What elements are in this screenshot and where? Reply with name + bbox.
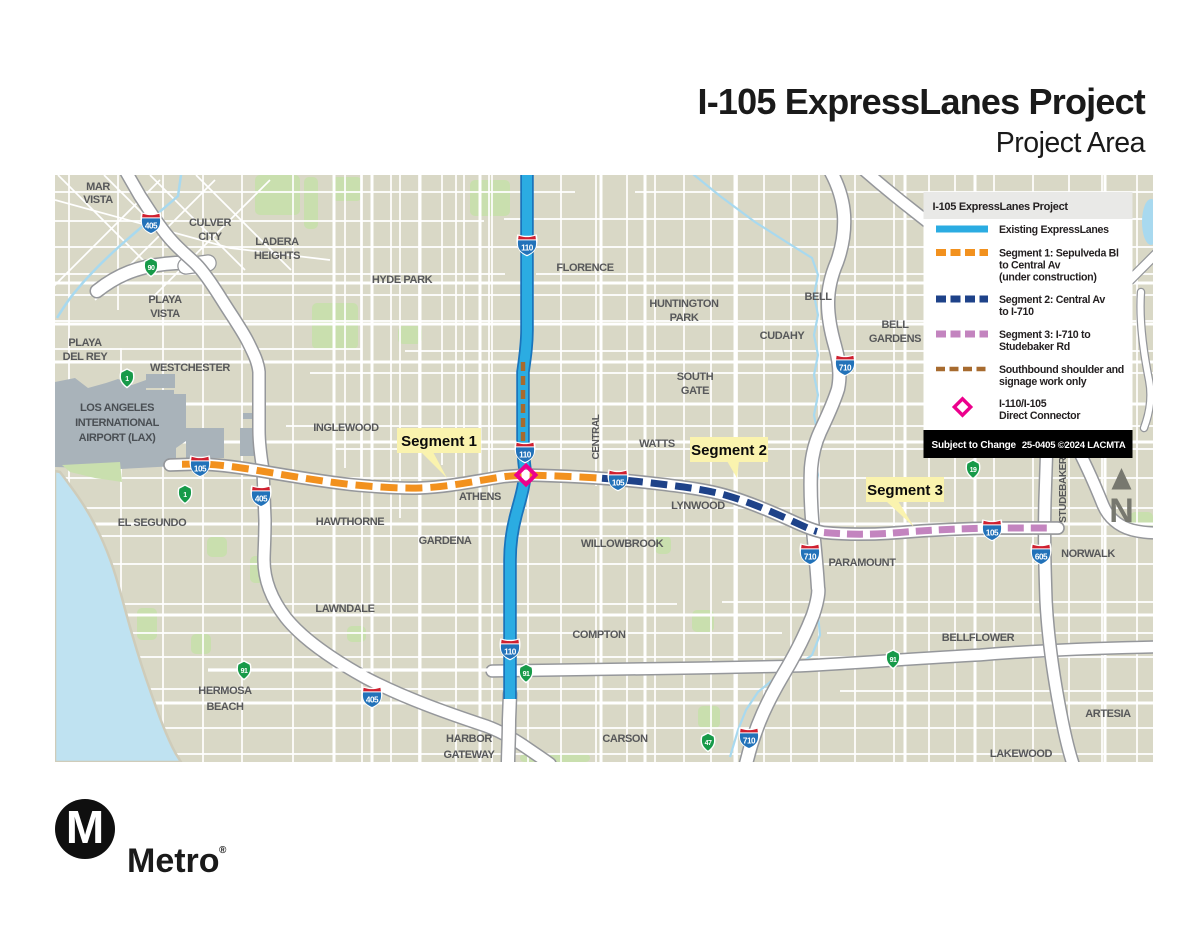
svg-text:PARK: PARK <box>670 312 699 324</box>
svg-text:I-105 ExpressLanes Project: I-105 ExpressLanes Project <box>698 81 1146 122</box>
svg-text:110: 110 <box>504 648 517 657</box>
svg-text:ARTESIA: ARTESIA <box>1085 708 1131 720</box>
svg-text:GATEWAY: GATEWAY <box>444 749 496 761</box>
svg-text:19: 19 <box>970 467 977 474</box>
svg-text:BEACH: BEACH <box>206 701 244 713</box>
svg-text:WATTS: WATTS <box>639 438 675 450</box>
svg-text:405: 405 <box>366 696 379 705</box>
svg-text:25-0405 ©2024 LACMTA: 25-0405 ©2024 LACMTA <box>1022 440 1126 451</box>
svg-text:COMPTON: COMPTON <box>572 629 626 641</box>
svg-text:47: 47 <box>705 740 712 747</box>
svg-text:Studebaker Rd: Studebaker Rd <box>999 341 1070 353</box>
svg-text:Segment 3: Segment 3 <box>867 482 943 499</box>
svg-text:Existing ExpressLanes: Existing ExpressLanes <box>999 224 1109 236</box>
svg-text:INGLEWOOD: INGLEWOOD <box>313 422 379 434</box>
svg-text:®: ® <box>219 845 227 856</box>
svg-text:110: 110 <box>521 244 534 253</box>
svg-text:HYDE PARK: HYDE PARK <box>372 274 433 286</box>
svg-text:LYNWOOD: LYNWOOD <box>671 500 725 512</box>
svg-text:105: 105 <box>986 529 999 538</box>
svg-text:Southbound shoulder and: Southbound shoulder and <box>999 364 1124 376</box>
svg-text:FLORENCE: FLORENCE <box>556 262 613 274</box>
svg-text:GARDENS: GARDENS <box>869 333 921 345</box>
svg-text:BELL: BELL <box>881 319 909 331</box>
svg-text:710: 710 <box>743 737 756 746</box>
svg-text:EL SEGUNDO: EL SEGUNDO <box>118 517 187 529</box>
svg-text:1: 1 <box>183 492 187 499</box>
svg-text:BELLFLOWER: BELLFLOWER <box>942 632 1015 644</box>
svg-text:VISTA: VISTA <box>150 308 180 320</box>
svg-text:105: 105 <box>612 479 625 488</box>
svg-text:605: 605 <box>1035 553 1048 562</box>
svg-text:signage work only: signage work only <box>999 376 1087 388</box>
svg-text:90: 90 <box>148 265 155 272</box>
svg-text:105: 105 <box>194 465 207 474</box>
svg-text:AIRPORT (LAX): AIRPORT (LAX) <box>79 432 156 444</box>
svg-text:PARAMOUNT: PARAMOUNT <box>828 557 896 569</box>
svg-text:(under construction): (under construction) <box>999 272 1097 284</box>
svg-text:to Central Av: to Central Av <box>999 260 1061 272</box>
svg-text:Segment 3: I-710 to: Segment 3: I-710 to <box>999 329 1091 341</box>
svg-text:Subject to Change: Subject to Change <box>932 440 1017 451</box>
svg-text:710: 710 <box>839 364 852 373</box>
svg-text:Direct Connector: Direct Connector <box>999 410 1080 422</box>
svg-text:Segment 1: Segment 1 <box>401 433 477 450</box>
svg-text:Segment 2: Central Av: Segment 2: Central Av <box>999 294 1105 306</box>
svg-text:WILLOWBROOK: WILLOWBROOK <box>581 538 664 550</box>
svg-text:GARDENA: GARDENA <box>419 535 472 547</box>
svg-text:CENTRAL: CENTRAL <box>591 414 602 459</box>
svg-text:405: 405 <box>145 222 158 231</box>
svg-text:710: 710 <box>804 553 817 562</box>
svg-text:INTERNATIONAL: INTERNATIONAL <box>75 417 159 429</box>
svg-text:Project Area: Project Area <box>996 127 1146 159</box>
svg-text:HERMOSA: HERMOSA <box>198 685 252 697</box>
svg-text:I-110/I-105: I-110/I-105 <box>999 398 1047 410</box>
svg-text:91: 91 <box>523 671 530 678</box>
svg-text:CARSON: CARSON <box>602 733 648 745</box>
svg-text:LAWNDALE: LAWNDALE <box>315 603 374 615</box>
svg-text:Segment 2: Segment 2 <box>691 442 767 459</box>
svg-text:CITY: CITY <box>198 231 223 243</box>
svg-text:405: 405 <box>255 495 268 504</box>
svg-text:SOUTH: SOUTH <box>677 371 714 383</box>
svg-text:HARBOR: HARBOR <box>446 733 492 745</box>
svg-text:LOS ANGELES: LOS ANGELES <box>80 402 154 414</box>
svg-text:MAR: MAR <box>86 181 110 193</box>
svg-text:LADERA: LADERA <box>255 236 299 248</box>
svg-text:VISTA: VISTA <box>83 194 113 206</box>
svg-text:LAKEWOOD: LAKEWOOD <box>990 748 1053 760</box>
svg-text:PLAYA: PLAYA <box>68 337 102 349</box>
svg-text:HEIGHTS: HEIGHTS <box>254 250 300 262</box>
svg-text:GATE: GATE <box>681 385 709 397</box>
svg-text:WESTCHESTER: WESTCHESTER <box>150 362 230 374</box>
svg-text:Segment 1: Sepulveda Bl: Segment 1: Sepulveda Bl <box>999 248 1119 260</box>
svg-text:91: 91 <box>241 668 248 675</box>
svg-text:N: N <box>1109 492 1134 530</box>
svg-text:HAWTHORNE: HAWTHORNE <box>316 516 385 528</box>
svg-text:Metro: Metro <box>127 842 220 880</box>
svg-text:91: 91 <box>890 657 897 664</box>
svg-text:to I-710: to I-710 <box>999 306 1034 318</box>
svg-text:I-105 ExpressLanes Project: I-105 ExpressLanes Project <box>933 201 1069 213</box>
svg-text:1: 1 <box>125 376 129 383</box>
svg-text:STUDEBAKER: STUDEBAKER <box>1058 456 1069 523</box>
svg-text:DEL REY: DEL REY <box>63 351 109 363</box>
svg-text:CULVER: CULVER <box>189 217 231 229</box>
svg-text:CUDAHY: CUDAHY <box>760 330 806 342</box>
svg-text:PLAYA: PLAYA <box>148 294 182 306</box>
svg-text:110: 110 <box>519 451 532 460</box>
svg-text:HUNTINGTON: HUNTINGTON <box>649 298 719 310</box>
svg-text:NORWALK: NORWALK <box>1061 548 1115 560</box>
svg-text:ATHENS: ATHENS <box>459 491 501 503</box>
svg-text:BELL: BELL <box>804 291 832 303</box>
svg-text:M: M <box>66 801 104 853</box>
